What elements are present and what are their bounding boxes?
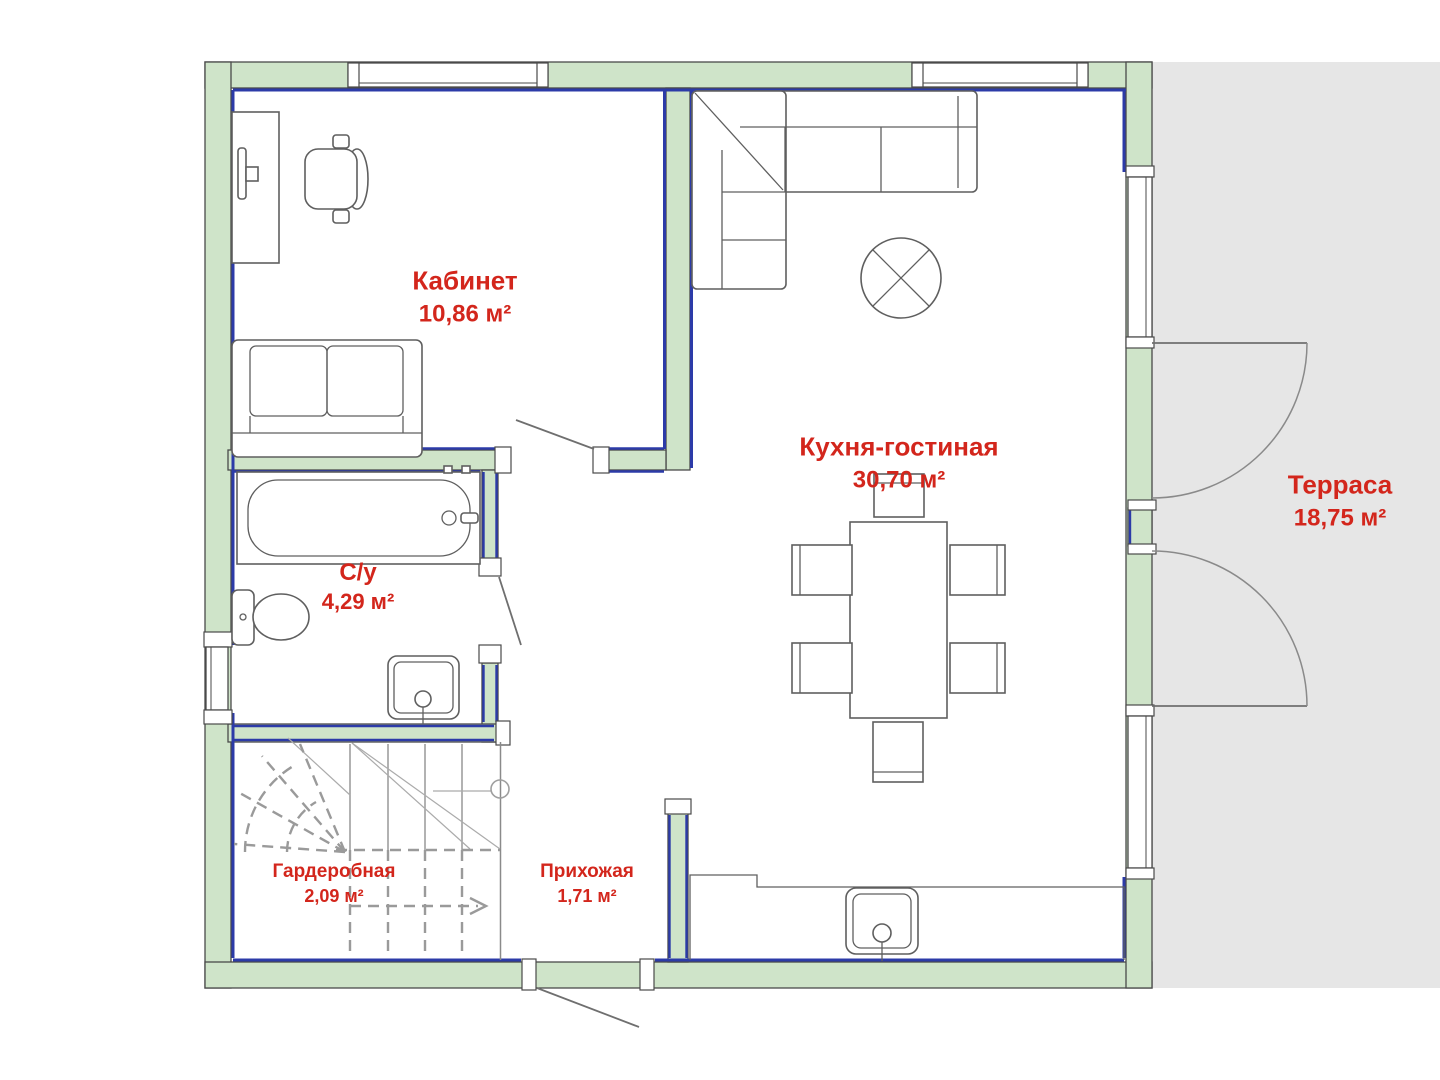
wall-office-bottom-right: [607, 450, 666, 470]
floor-plan-drawing: [0, 0, 1440, 1080]
room-label-wardrobe: Гардеробная 2,09 м²: [273, 860, 396, 908]
dining-chair-right-2: [950, 643, 1005, 693]
living-room-furniture: [690, 91, 1124, 961]
dining-chair-bottom: [873, 722, 923, 782]
room-name: С/у: [322, 557, 395, 588]
dining-set: [792, 474, 1005, 782]
window-left-bathroom: [204, 632, 232, 724]
wall-office-living-divider: [666, 88, 690, 470]
wall-hallway-kitchen-stub: [668, 813, 688, 962]
window-right-living-lower: [1126, 705, 1154, 879]
kitchen-sink: [846, 888, 918, 961]
dining-chair-right-1: [950, 545, 1005, 595]
office-furniture: [232, 112, 422, 457]
toilet: [232, 590, 309, 645]
wall-bottom: [205, 962, 1152, 988]
room-area: 2,09 м²: [273, 885, 396, 908]
staircase: [234, 738, 509, 960]
bathroom-sink: [388, 656, 459, 724]
room-area: 10,86 м²: [412, 298, 517, 329]
room-name: Терраса: [1288, 469, 1393, 503]
room-name: Прихожая: [540, 860, 634, 885]
room-area: 1,71 м²: [540, 885, 634, 908]
interior-doors: [479, 420, 691, 1027]
room-name: Кухня-гостиная: [799, 431, 998, 465]
bathroom-door-leaf: [499, 577, 521, 645]
kitchen-counter: [690, 875, 1124, 961]
office-door-leaf: [516, 420, 594, 449]
room-area: 4,29 м²: [322, 588, 395, 617]
room-name: Кабинет: [412, 265, 517, 299]
window-right-living-upper: [1126, 166, 1154, 348]
room-area: 18,75 м²: [1288, 502, 1393, 533]
coffee-table: [861, 238, 941, 318]
window-top-1: [348, 63, 548, 87]
floor-plan-canvas: Кабинет 10,86 м² Кухня-гостиная 30,70 м²…: [0, 0, 1440, 1080]
office-sofa: [232, 340, 422, 457]
room-label-terrace: Терраса 18,75 м²: [1288, 469, 1393, 534]
office-chair: [305, 135, 368, 223]
entrance-door-leaf: [537, 988, 639, 1027]
wall-left: [205, 62, 231, 988]
room-label-hallway: Прихожая 1,71 м²: [540, 860, 634, 908]
room-label-bathroom: С/у 4,29 м²: [322, 557, 395, 617]
bathtub: [237, 466, 480, 564]
room-area: 30,70 м²: [799, 464, 998, 495]
dining-chair-left-1: [792, 545, 852, 595]
room-label-kitchen-living: Кухня-гостиная 30,70 м²: [799, 431, 998, 496]
dining-table: [850, 522, 947, 718]
room-name: Гардеробная: [273, 860, 396, 885]
terrace-door-mullion: [1128, 508, 1152, 546]
window-top-2: [912, 63, 1088, 87]
room-label-office: Кабинет 10,86 м²: [412, 265, 517, 330]
dining-chair-left-2: [792, 643, 852, 693]
stair-dashed-flight: [234, 744, 500, 958]
